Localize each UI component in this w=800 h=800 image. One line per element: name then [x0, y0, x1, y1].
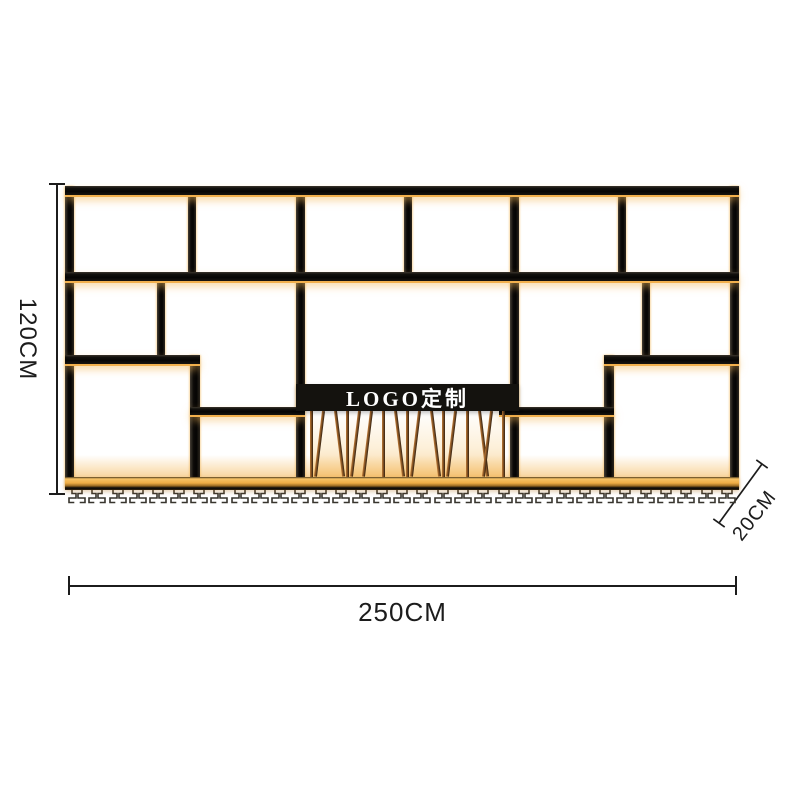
full-divider-right	[510, 195, 519, 477]
glass-hook-pair	[87, 489, 107, 506]
shelf-row1-bar	[65, 272, 739, 283]
glass-hook-pair	[514, 489, 534, 506]
wine-rack-shelf: LOGO定制	[65, 186, 739, 511]
width-cap-left	[68, 576, 70, 595]
glass-hook-pair	[676, 489, 696, 506]
glass-hook-pair	[189, 489, 209, 506]
bottle-rod	[502, 411, 505, 477]
glass-hook-pair	[615, 489, 635, 506]
glass-hook-pair	[209, 489, 229, 506]
glass-hook-pair	[148, 489, 168, 506]
bottle-rod	[310, 411, 313, 477]
narrow-divider-right	[642, 281, 650, 355]
glass-hook-pair	[169, 489, 189, 506]
height-label: 120CM	[13, 298, 41, 380]
height-dimension: 120CM	[56, 184, 58, 494]
logo-text: LOGO定制	[346, 383, 469, 413]
bottle-rod	[362, 411, 373, 477]
frame-top-bar	[65, 186, 739, 197]
width-dimension: 250CM	[68, 577, 737, 631]
glass-hook-pair	[453, 489, 473, 506]
frame-right-bar	[730, 186, 739, 489]
narrow-divider-left	[157, 281, 165, 355]
glass-hook-pair	[656, 489, 676, 506]
bottle-rod	[446, 411, 457, 477]
glass-hook-pair	[412, 489, 432, 506]
full-divider-left	[296, 195, 305, 477]
bottle-rod	[314, 411, 325, 477]
top-divider-1	[188, 195, 196, 272]
glass-hook-pair	[270, 489, 290, 506]
glass-hook-pair	[697, 489, 717, 506]
bottle-rod	[442, 411, 445, 477]
bottle-rod-rack	[310, 411, 505, 477]
shelf-mid-left-bar	[65, 355, 200, 366]
shelf-mid-right-bar	[604, 355, 739, 366]
bottle-rod	[466, 411, 469, 477]
bottle-rod	[346, 411, 349, 477]
height-cap-top	[49, 183, 65, 185]
bottle-rod	[430, 411, 441, 477]
height-dimension-line	[56, 184, 58, 494]
logo-band: LOGO定制	[296, 384, 519, 411]
glass-hook-pair	[494, 489, 514, 506]
top-divider-3	[618, 195, 626, 272]
glass-hook-pair	[311, 489, 331, 506]
bottle-rod	[406, 411, 409, 477]
glass-hook-pair	[575, 489, 595, 506]
glass-hook-pair	[433, 489, 453, 506]
height-cap-bottom	[49, 493, 65, 495]
product-dimension-diagram: LOGO定制 120CM 250CM 20CM	[0, 0, 800, 800]
frame-left-bar	[65, 186, 74, 489]
bottle-rod	[334, 411, 345, 477]
bottle-rod	[410, 411, 421, 477]
glass-hook-pair	[250, 489, 270, 506]
glass-hook-pair	[717, 489, 737, 506]
width-cap-right	[735, 576, 737, 595]
stemware-hook-rail	[67, 489, 737, 506]
glass-hook-pair	[392, 489, 412, 506]
shelf-lower-left-bar	[190, 407, 305, 417]
glass-hook-pair	[636, 489, 656, 506]
glass-hook-pair	[372, 489, 392, 506]
bottle-rod	[394, 411, 405, 477]
glass-hook-pair	[473, 489, 493, 506]
top-divider-2	[404, 195, 412, 272]
frame-bottom-bar	[65, 477, 739, 490]
glass-hook-pair	[290, 489, 310, 506]
glass-hook-pair	[595, 489, 615, 506]
glass-hook-pair	[331, 489, 351, 506]
bottle-rod	[350, 411, 361, 477]
glass-hook-pair	[230, 489, 250, 506]
bottle-rod	[382, 411, 385, 477]
glass-hook-pair	[555, 489, 575, 506]
glass-hook-pair	[128, 489, 148, 506]
glass-hook-pair	[351, 489, 371, 506]
glass-hook-pair	[67, 489, 87, 506]
width-dimension-line	[68, 585, 737, 587]
width-label: 250CM	[68, 597, 737, 628]
glass-hook-pair	[108, 489, 128, 506]
glass-hook-pair	[534, 489, 554, 506]
